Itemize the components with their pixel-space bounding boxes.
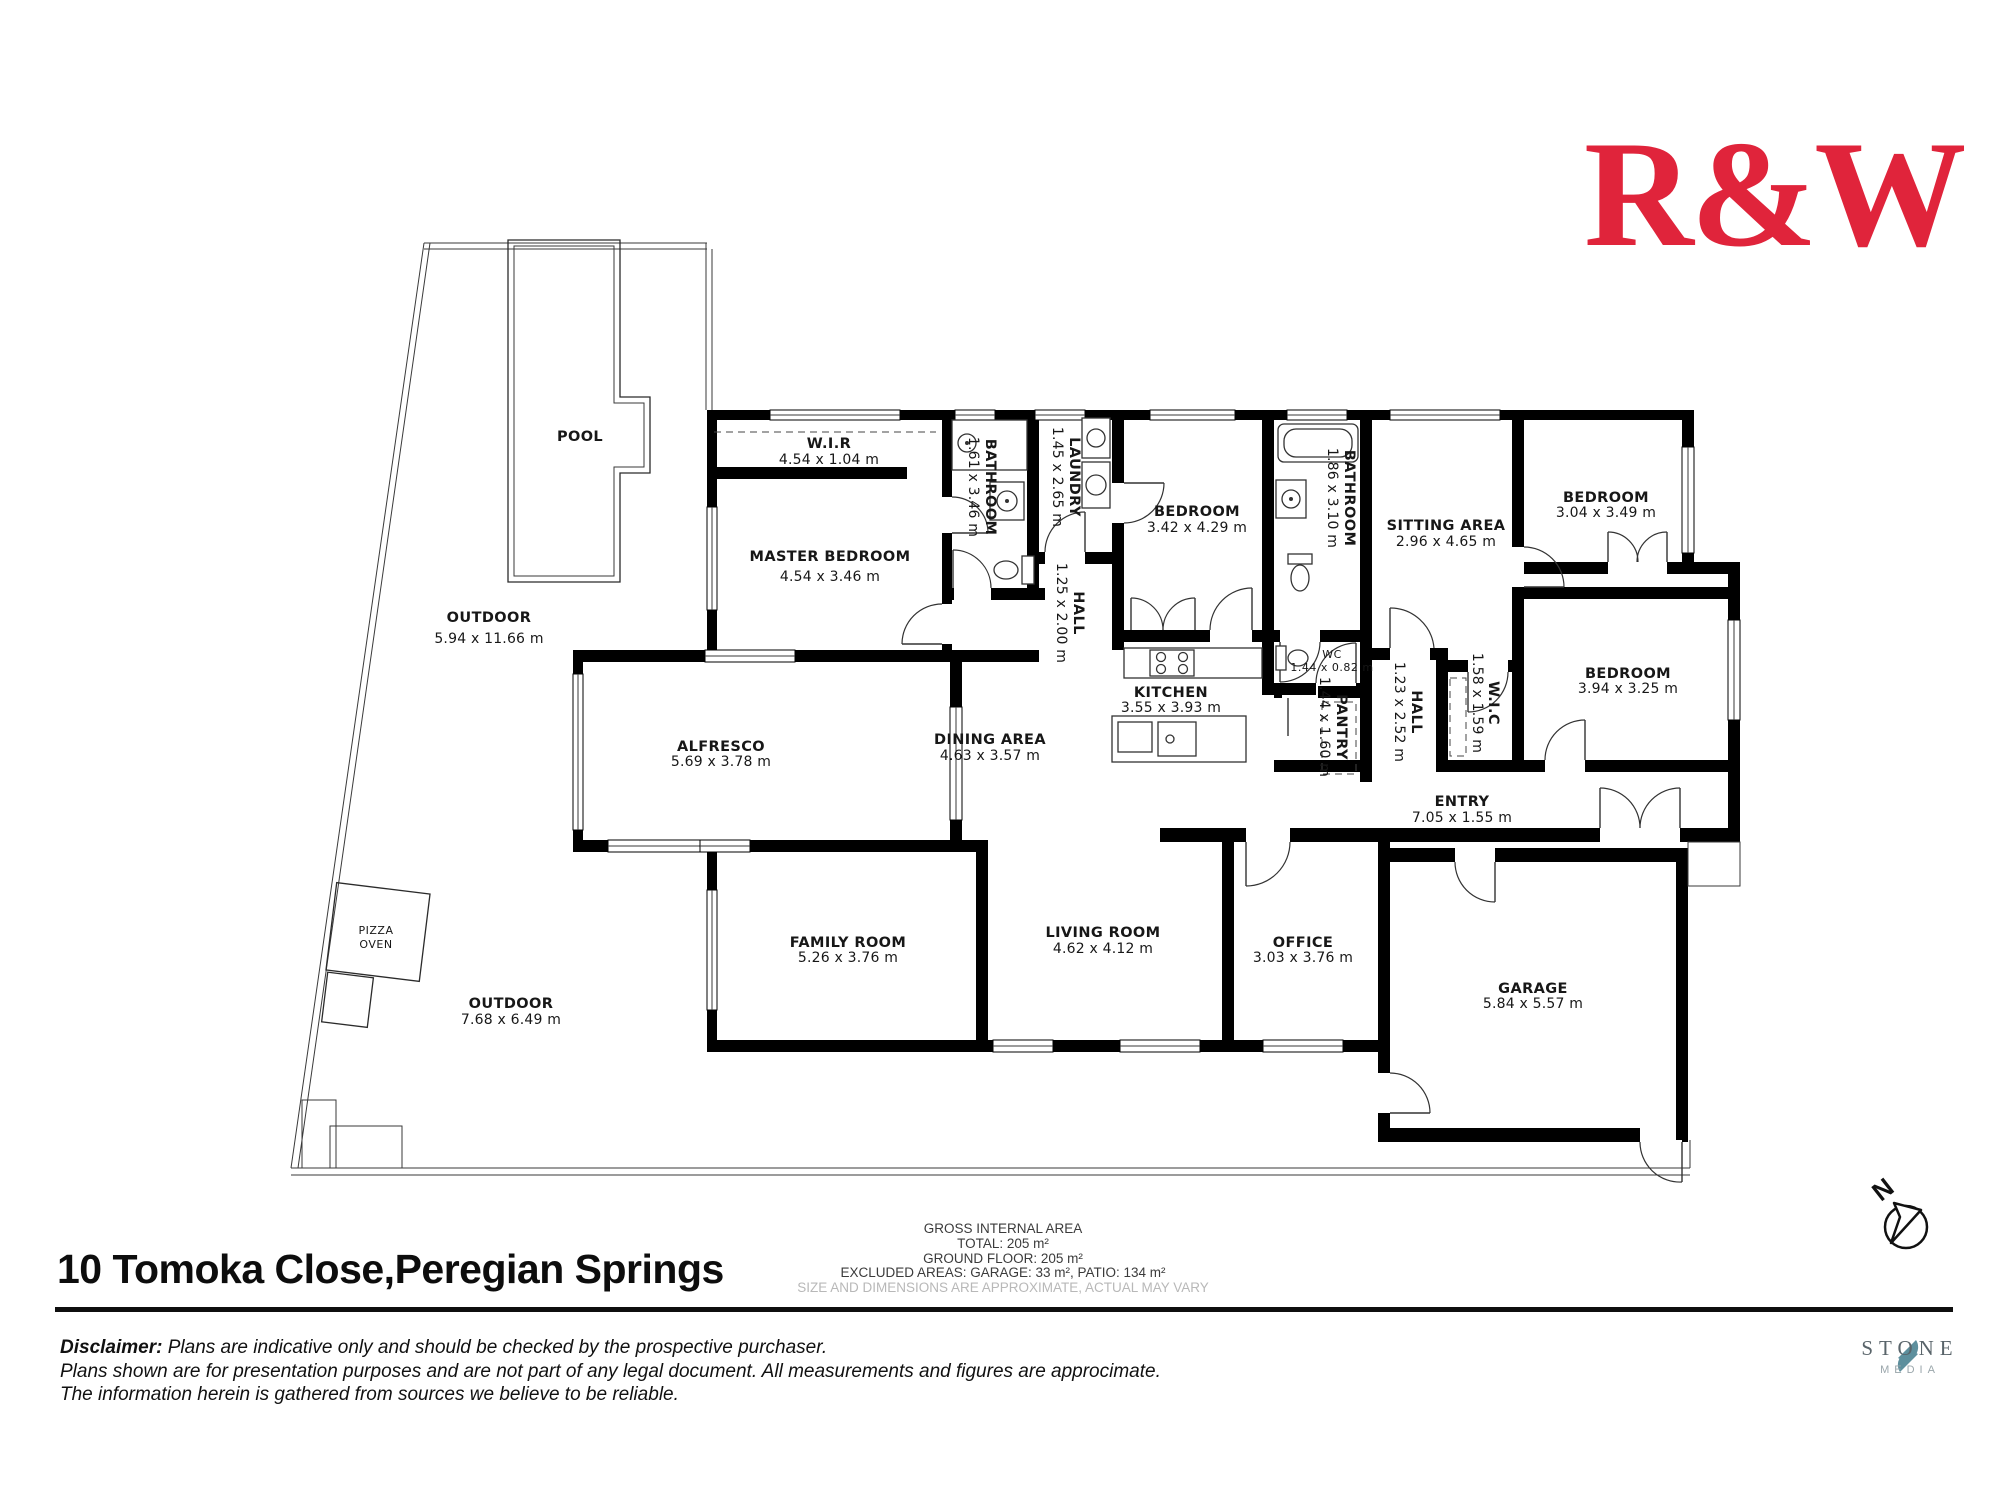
svg-text:1.44 x 0.82 m: 1.44 x 0.82 m: [1290, 661, 1373, 674]
svg-text:4.54 x 1.04 m: 4.54 x 1.04 m: [779, 452, 879, 468]
footer-divider: [55, 1307, 1953, 1312]
label-hall-1: HALL: [1070, 591, 1086, 634]
compass-n-label: N: [1866, 1172, 1899, 1207]
label-pizza-oven: PIZZA: [359, 924, 394, 937]
stone-media-logo: STONE MEDIA: [1830, 1332, 1990, 1376]
svg-text:4.63 x 3.57 m: 4.63 x 3.57 m: [940, 748, 1040, 764]
svg-text:5.69 x 3.78 m: 5.69 x 3.78 m: [671, 754, 771, 770]
label-wic: W.I.C: [1485, 681, 1501, 725]
label-entry: ENTRY: [1435, 794, 1490, 810]
svg-text:3.04 x 3.49 m: 3.04 x 3.49 m: [1556, 505, 1656, 521]
toilet-icon: [1022, 556, 1034, 584]
svg-text:OVEN: OVEN: [359, 938, 392, 951]
label-outdoor-top: OUTDOOR: [447, 610, 532, 626]
disclaimer-line-1: Disclaimer: Plans are indicative only an…: [60, 1336, 1161, 1360]
label-office: OFFICE: [1273, 935, 1333, 951]
label-wir: W.I.R: [807, 436, 851, 452]
north-arrow-icon: N: [1866, 1172, 1927, 1248]
svg-text:1.44 x 1.60 m: 1.44 x 1.60 m: [1316, 677, 1332, 777]
svg-text:3.55 x 3.93 m: 3.55 x 3.93 m: [1121, 700, 1221, 716]
area-summary: GROSS INTERNAL AREA TOTAL: 205 m² GROUND…: [797, 1222, 1209, 1296]
disclaimer-line-3: The information herein is gathered from …: [60, 1383, 1161, 1407]
label-bedroom-r: BEDROOM: [1585, 666, 1671, 682]
svg-text:1.61 x 3.46 m: 1.61 x 3.46 m: [965, 437, 981, 537]
cooktop-icon: [1150, 650, 1194, 676]
svg-text:5.94 x 11.66 m: 5.94 x 11.66 m: [434, 631, 543, 647]
label-family-room: FAMILY ROOM: [790, 935, 906, 951]
label-laundry: LAUNDRY: [1066, 437, 1082, 517]
stone-media-name: STONE: [1830, 1336, 1990, 1361]
disclaimer: Disclaimer: Plans are indicative only an…: [60, 1336, 1161, 1407]
label-bedroom-tr: BEDROOM: [1563, 490, 1649, 506]
floorplan-page: POOL OUTDOOR 5.94 x 11.66 m W.I.R 4.54 x…: [0, 0, 2000, 1500]
svg-text:1.23 x 2.52 m: 1.23 x 2.52 m: [1391, 662, 1407, 762]
label-bedroom-2: BEDROOM: [1154, 504, 1240, 520]
svg-text:5.26 x 3.76 m: 5.26 x 3.76 m: [798, 950, 898, 966]
label-garage: GARAGE: [1498, 981, 1568, 997]
label-living-room: LIVING ROOM: [1046, 925, 1161, 941]
svg-text:3.03 x 3.76 m: 3.03 x 3.76 m: [1253, 950, 1353, 966]
label-hall-2: HALL: [1408, 690, 1424, 733]
pool-outline: [508, 240, 650, 582]
rw-logo: R&W: [1584, 118, 1963, 270]
label-dining-area: DINING AREA: [934, 732, 1046, 748]
svg-text:1.58 x 1.59 m: 1.58 x 1.59 m: [1469, 653, 1485, 753]
area-summary-excluded: EXCLUDED AREAS: GARAGE: 33 m², PATIO: 13…: [797, 1266, 1209, 1281]
area-summary-title: GROSS INTERNAL AREA: [797, 1222, 1209, 1237]
svg-text:1.86 x 3.10 m: 1.86 x 3.10 m: [1324, 448, 1340, 548]
svg-text:1.45 x 2.65 m: 1.45 x 2.65 m: [1049, 427, 1065, 527]
svg-text:3.94 x 3.25 m: 3.94 x 3.25 m: [1578, 681, 1678, 697]
page-title: 10 Tomoka Close,Peregian Springs: [57, 1246, 724, 1293]
label-outdoor-bottom: OUTDOOR: [469, 996, 554, 1012]
label-pantry: PANTRY: [1333, 694, 1349, 760]
pizza-oven-outline: [320, 883, 430, 1033]
area-summary-ground-floor: GROUND FLOOR: 205 m²: [797, 1252, 1209, 1267]
sink-icon: [1158, 722, 1196, 756]
svg-text:7.68 x 6.49 m: 7.68 x 6.49 m: [461, 1012, 561, 1028]
label-sitting-area: SITTING AREA: [1387, 518, 1506, 534]
toilet-icon: [1288, 554, 1312, 564]
svg-text:7.05 x 1.55 m: 7.05 x 1.55 m: [1412, 810, 1512, 826]
label-kitchen: KITCHEN: [1134, 685, 1208, 701]
disclaimer-line-2: Plans shown are for presentation purpose…: [60, 1360, 1161, 1384]
label-bathroom-2: BATHROOM: [1341, 450, 1357, 547]
disclaimer-label: Disclaimer:: [60, 1337, 162, 1358]
toilet-icon: [1276, 646, 1286, 670]
stone-media-sub: MEDIA: [1830, 1364, 1990, 1376]
svg-text:4.62 x 4.12 m: 4.62 x 4.12 m: [1053, 941, 1153, 957]
label-alfresco: ALFRESCO: [677, 739, 765, 755]
svg-text:5.84 x 5.57 m: 5.84 x 5.57 m: [1483, 996, 1583, 1012]
label-bathroom-1: BATHROOM: [982, 439, 998, 536]
svg-text:3.42 x 4.29 m: 3.42 x 4.29 m: [1147, 520, 1247, 536]
svg-text:4.54 x 3.46 m: 4.54 x 3.46 m: [780, 569, 880, 585]
label-pool: POOL: [557, 429, 603, 445]
area-summary-note: SIZE AND DIMENSIONS ARE APPROXIMATE, ACT…: [797, 1281, 1209, 1296]
area-summary-total: TOTAL: 205 m²: [797, 1237, 1209, 1252]
svg-text:1.25 x 2.00 m: 1.25 x 2.00 m: [1053, 563, 1069, 663]
label-wc: WC: [1322, 648, 1342, 661]
svg-text:2.96 x 4.65 m: 2.96 x 4.65 m: [1396, 534, 1496, 550]
label-master-bedroom: MASTER BEDROOM: [750, 549, 911, 565]
